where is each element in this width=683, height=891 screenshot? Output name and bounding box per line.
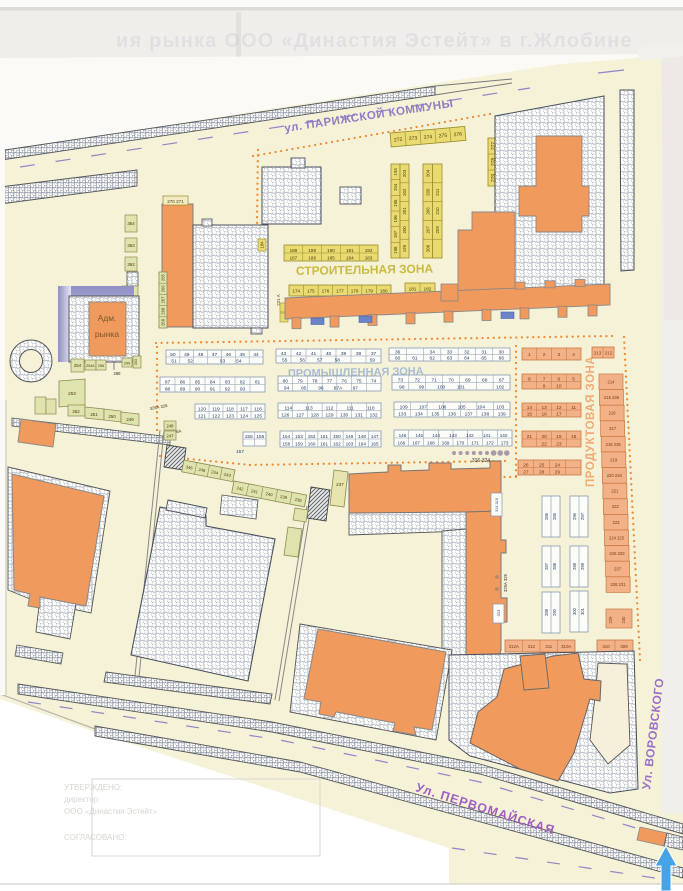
svg-text:296: 296 <box>572 512 577 520</box>
svg-text:224 225: 224 225 <box>609 535 625 540</box>
svg-text:58: 58 <box>335 358 341 364</box>
svg-text:252: 252 <box>72 409 80 414</box>
svg-text:237: 237 <box>614 567 622 572</box>
svg-text:88: 88 <box>165 387 171 393</box>
svg-text:16: 16 <box>541 412 547 418</box>
svg-text:ия рынка ООО «Династия Эстейт»: ия рынка ООО «Династия Эстейт» в г.Жлоби… <box>116 30 633 52</box>
svg-text:105: 105 <box>458 404 466 410</box>
svg-text:170: 170 <box>457 441 465 446</box>
svg-text:94: 94 <box>284 386 290 392</box>
svg-text:168: 168 <box>427 441 435 446</box>
svg-text:89: 89 <box>180 387 186 393</box>
svg-text:206: 206 <box>425 207 430 215</box>
svg-text:37: 37 <box>371 351 377 357</box>
svg-text:196: 196 <box>393 215 398 223</box>
svg-text:159: 159 <box>295 442 303 447</box>
svg-text:126: 126 <box>281 413 289 419</box>
svg-text:69: 69 <box>465 377 471 383</box>
svg-text:80: 80 <box>283 378 289 384</box>
svg-text:97А: 97А <box>334 386 343 392</box>
svg-text:102: 102 <box>496 385 504 391</box>
svg-text:17: 17 <box>556 412 562 418</box>
svg-text:226 233: 226 233 <box>609 551 625 556</box>
svg-text:49: 49 <box>184 352 190 358</box>
svg-text:79: 79 <box>297 378 303 384</box>
svg-text:Адм.: Адм. <box>98 313 117 323</box>
svg-text:52: 52 <box>188 359 194 365</box>
svg-text:188: 188 <box>290 248 298 253</box>
svg-text:46: 46 <box>226 352 232 358</box>
svg-text:18: 18 <box>571 434 577 440</box>
svg-text:128: 128 <box>311 413 319 419</box>
svg-text:130: 130 <box>340 413 348 419</box>
svg-text:312А: 312А <box>509 644 519 649</box>
svg-text:288: 288 <box>552 562 557 570</box>
svg-text:197: 197 <box>393 230 398 238</box>
svg-text:40: 40 <box>326 351 332 357</box>
svg-text:249: 249 <box>126 417 134 422</box>
svg-text:УТВЕРЖДЕНО:: УТВЕРЖДЕНО: <box>64 783 122 792</box>
svg-text:127: 127 <box>296 413 304 419</box>
svg-text:33: 33 <box>447 349 453 355</box>
svg-text:100: 100 <box>437 385 445 391</box>
svg-text:181: 181 <box>409 286 417 291</box>
svg-text:10: 10 <box>556 384 562 390</box>
svg-text:ПРОДУКТОВАЯ ЗОНА: ПРОДУКТОВАЯ ЗОНА <box>585 356 597 487</box>
svg-text:СОГЛАСОВАНО:: СОГЛАСОВАНО: <box>64 833 127 842</box>
svg-text:199: 199 <box>402 244 407 252</box>
svg-text:39: 39 <box>341 351 347 357</box>
svg-text:66: 66 <box>499 356 505 362</box>
svg-text:250: 250 <box>108 414 116 419</box>
svg-text:38: 38 <box>356 351 362 357</box>
svg-text:81: 81 <box>255 379 261 385</box>
svg-text:59: 59 <box>370 358 376 364</box>
svg-text:13: 13 <box>541 405 547 411</box>
svg-text:96: 96 <box>318 386 324 392</box>
svg-text:362: 362 <box>127 262 135 267</box>
svg-text:118: 118 <box>226 406 234 412</box>
svg-text:76: 76 <box>342 378 348 384</box>
svg-text:106: 106 <box>438 404 446 410</box>
svg-text:312: 312 <box>528 644 536 649</box>
svg-text:182: 182 <box>424 286 432 291</box>
svg-text:156: 156 <box>245 434 253 440</box>
svg-text:135: 135 <box>431 412 439 418</box>
svg-text:211: 211 <box>435 188 440 196</box>
svg-text:230: 230 <box>621 616 626 624</box>
svg-text:СТРОИТЕЛЬНАЯ ЗОНА: СТРОИТЕЛЬНАЯ ЗОНА <box>296 262 434 278</box>
svg-text:363: 363 <box>127 243 135 248</box>
svg-text:55: 55 <box>282 358 288 364</box>
svg-text:122: 122 <box>212 414 220 420</box>
svg-text:67: 67 <box>499 377 505 383</box>
svg-text:248: 248 <box>167 424 175 429</box>
svg-text:237: 237 <box>336 482 344 487</box>
svg-text:30: 30 <box>499 349 505 355</box>
svg-text:101: 101 <box>457 385 465 391</box>
svg-text:313: 313 <box>496 609 501 616</box>
svg-text:116: 116 <box>254 406 262 412</box>
svg-text:219: 219 <box>610 457 618 462</box>
svg-text:301: 301 <box>580 607 585 615</box>
svg-text:210: 210 <box>435 207 440 215</box>
svg-text:104: 104 <box>477 404 485 410</box>
svg-text:3: 3 <box>558 352 561 358</box>
svg-text:99: 99 <box>419 385 425 391</box>
svg-text:300: 300 <box>572 607 577 615</box>
svg-text:7: 7 <box>543 376 546 382</box>
svg-text:134: 134 <box>415 412 423 418</box>
svg-text:53: 53 <box>220 359 226 365</box>
svg-text:175: 175 <box>307 288 315 293</box>
svg-text:95: 95 <box>301 386 307 392</box>
svg-text:147: 147 <box>371 434 379 439</box>
svg-text:77: 77 <box>327 378 333 384</box>
svg-text:54: 54 <box>236 359 242 365</box>
svg-text:266: 266 <box>161 285 166 293</box>
svg-text:29: 29 <box>555 470 561 476</box>
svg-text:24: 24 <box>555 462 561 468</box>
svg-text:172: 172 <box>486 441 494 446</box>
svg-text:217: 217 <box>609 426 617 431</box>
svg-text:65: 65 <box>481 356 487 362</box>
svg-text:9: 9 <box>543 384 546 390</box>
svg-text:86: 86 <box>180 379 186 385</box>
svg-text:70: 70 <box>448 377 454 383</box>
svg-text:201: 201 <box>402 207 407 215</box>
svg-text:157: 157 <box>236 449 244 455</box>
svg-text:90: 90 <box>195 387 201 393</box>
svg-text:51: 51 <box>171 359 177 365</box>
svg-text:164: 164 <box>358 442 366 447</box>
svg-text:61: 61 <box>412 356 418 362</box>
svg-text:141: 141 <box>483 433 491 438</box>
svg-text:42: 42 <box>296 351 302 357</box>
svg-text:160: 160 <box>308 442 316 447</box>
svg-text:251: 251 <box>90 412 98 417</box>
svg-text:178: 178 <box>351 288 359 293</box>
svg-text:167: 167 <box>412 441 420 446</box>
svg-text:309: 309 <box>620 644 628 649</box>
svg-text:146: 146 <box>399 433 407 438</box>
svg-text:276: 276 <box>454 132 463 139</box>
svg-text:8: 8 <box>528 376 531 382</box>
svg-text:311: 311 <box>545 644 553 649</box>
svg-text:209: 209 <box>435 226 440 234</box>
svg-text:83: 83 <box>225 379 231 385</box>
svg-text:41: 41 <box>311 351 317 357</box>
svg-text:56: 56 <box>300 358 306 364</box>
svg-text:214: 214 <box>608 379 616 384</box>
svg-text:179: 179 <box>365 288 373 293</box>
svg-text:140: 140 <box>500 433 508 438</box>
svg-text:директор: директор <box>64 795 99 804</box>
svg-text:193: 193 <box>393 168 398 176</box>
svg-text:154: 154 <box>282 434 290 439</box>
svg-text:73: 73 <box>398 377 404 383</box>
svg-text:111: 111 <box>346 405 354 411</box>
svg-text:145: 145 <box>415 433 423 438</box>
svg-text:87: 87 <box>165 379 171 385</box>
svg-text:121: 121 <box>198 414 206 420</box>
svg-text:222: 222 <box>612 504 620 509</box>
svg-text:143: 143 <box>449 433 457 438</box>
svg-text:62: 62 <box>430 356 436 362</box>
svg-text:31: 31 <box>481 349 487 355</box>
svg-text:297: 297 <box>580 512 585 520</box>
svg-text:93: 93 <box>240 387 246 393</box>
svg-text:63: 63 <box>447 356 453 362</box>
svg-text:299: 299 <box>580 562 585 570</box>
svg-text:45: 45 <box>240 352 246 358</box>
svg-text:176: 176 <box>322 288 330 293</box>
svg-text:11: 11 <box>571 405 576 411</box>
svg-text:286: 286 <box>544 512 549 520</box>
svg-text:173: 173 <box>501 441 509 446</box>
svg-text:203: 203 <box>402 169 407 177</box>
svg-text:22: 22 <box>541 442 547 448</box>
svg-text:139: 139 <box>498 412 506 418</box>
svg-text:166: 166 <box>398 441 406 446</box>
svg-text:27: 27 <box>523 470 529 476</box>
svg-text:273: 273 <box>409 135 418 142</box>
svg-text:155: 155 <box>256 434 264 440</box>
svg-text:123: 123 <box>226 414 234 420</box>
svg-text:270 271: 270 271 <box>167 199 184 204</box>
svg-text:6: 6 <box>558 376 561 382</box>
svg-text:137: 137 <box>465 412 473 418</box>
svg-text:113: 113 <box>305 405 313 411</box>
svg-text:133: 133 <box>398 412 406 418</box>
svg-text:205: 205 <box>425 188 430 196</box>
svg-text:82: 82 <box>240 379 246 385</box>
svg-text:107: 107 <box>419 404 427 410</box>
svg-text:288: 288 <box>114 371 122 376</box>
svg-text:310: 310 <box>602 644 610 649</box>
svg-text:298: 298 <box>572 562 577 570</box>
svg-text:97: 97 <box>353 386 359 392</box>
svg-text:269: 269 <box>161 318 166 326</box>
svg-text:114: 114 <box>284 405 292 411</box>
svg-text:186: 186 <box>308 256 316 261</box>
svg-text:247: 247 <box>167 434 175 439</box>
svg-text:120: 120 <box>198 406 206 412</box>
svg-text:124: 124 <box>240 414 248 420</box>
svg-text:207: 207 <box>425 226 430 234</box>
svg-text:28: 28 <box>539 470 545 476</box>
svg-text:98: 98 <box>399 385 405 391</box>
svg-text:32: 32 <box>464 349 470 355</box>
svg-text:20: 20 <box>541 434 547 440</box>
svg-text:204: 204 <box>425 169 430 177</box>
svg-text:149: 149 <box>346 434 354 439</box>
svg-text:158: 158 <box>282 442 290 447</box>
svg-text:267: 267 <box>161 296 166 304</box>
svg-text:253: 253 <box>68 391 76 396</box>
svg-text:5: 5 <box>572 376 575 382</box>
svg-text:26: 26 <box>523 462 529 468</box>
svg-text:220 234: 220 234 <box>607 473 623 478</box>
svg-text:212: 212 <box>605 350 613 355</box>
svg-text:268: 268 <box>161 307 166 315</box>
svg-text:153: 153 <box>295 434 303 439</box>
svg-text:50: 50 <box>170 352 176 358</box>
svg-text:163: 163 <box>346 442 354 447</box>
svg-text:256: 256 <box>98 364 104 368</box>
svg-text:254А: 254А <box>86 364 95 368</box>
svg-text:150: 150 <box>333 434 341 439</box>
svg-text:229: 229 <box>608 616 613 624</box>
svg-text:92: 92 <box>225 387 231 393</box>
svg-text:174: 174 <box>292 288 300 293</box>
svg-text:165: 165 <box>371 442 379 447</box>
svg-text:254: 254 <box>74 363 82 368</box>
svg-text:148: 148 <box>358 434 366 439</box>
svg-text:91: 91 <box>210 387 216 393</box>
svg-text:287: 287 <box>544 562 549 570</box>
svg-text:299: 299 <box>124 362 130 366</box>
svg-text:213: 213 <box>594 350 602 355</box>
svg-text:285: 285 <box>552 512 557 520</box>
svg-text:314 315: 314 315 <box>495 498 499 512</box>
svg-text:34: 34 <box>430 349 436 355</box>
svg-text:132: 132 <box>370 413 378 419</box>
svg-text:136: 136 <box>448 412 456 418</box>
svg-text:272: 272 <box>394 137 403 144</box>
svg-text:72: 72 <box>415 377 421 383</box>
svg-text:187: 187 <box>290 256 298 261</box>
svg-text:290: 290 <box>552 608 557 616</box>
svg-text:78: 78 <box>312 378 318 384</box>
svg-text:289: 289 <box>544 608 549 616</box>
svg-text:183: 183 <box>365 256 373 261</box>
svg-text:112: 112 <box>326 405 334 411</box>
svg-text:109: 109 <box>400 404 408 410</box>
svg-text:2: 2 <box>543 352 546 358</box>
svg-text:144: 144 <box>432 433 440 438</box>
svg-text:85: 85 <box>195 379 201 385</box>
svg-text:200: 200 <box>402 226 407 234</box>
svg-text:131: 131 <box>355 413 363 419</box>
svg-text:117: 117 <box>240 406 248 412</box>
svg-text:265: 265 <box>161 273 166 281</box>
svg-text:215 236: 215 236 <box>604 395 620 400</box>
svg-text:12: 12 <box>556 405 562 411</box>
svg-text:68: 68 <box>482 377 488 383</box>
svg-text:4: 4 <box>572 352 575 358</box>
svg-text:162: 162 <box>333 442 341 447</box>
svg-text:169: 169 <box>442 441 450 446</box>
svg-text:75: 75 <box>356 378 362 384</box>
svg-text:198: 198 <box>393 246 398 254</box>
svg-text:316-324: 316-324 <box>472 458 491 464</box>
svg-text:185: 185 <box>327 256 335 261</box>
svg-text:208: 208 <box>425 244 430 252</box>
svg-text:218 235: 218 235 <box>606 442 622 447</box>
svg-text:110: 110 <box>367 405 375 411</box>
svg-text:202: 202 <box>402 188 407 196</box>
svg-text:19: 19 <box>556 434 562 440</box>
svg-text:рынка: рынка <box>95 329 119 339</box>
svg-text:184: 184 <box>346 256 354 261</box>
svg-text:303: 303 <box>134 359 138 365</box>
svg-text:161: 161 <box>320 442 328 447</box>
svg-text:216: 216 <box>609 411 617 416</box>
svg-text:103: 103 <box>496 404 504 410</box>
svg-text:71: 71 <box>431 377 437 383</box>
svg-text:191: 191 <box>346 248 354 253</box>
svg-text:189: 189 <box>308 248 316 253</box>
svg-text:47: 47 <box>212 352 218 358</box>
svg-text:180: 180 <box>380 288 388 293</box>
svg-text:48: 48 <box>198 352 204 358</box>
svg-text:74: 74 <box>371 378 377 384</box>
svg-text:36: 36 <box>395 349 401 355</box>
svg-text:190: 190 <box>327 248 335 253</box>
svg-text:195: 195 <box>393 199 398 207</box>
svg-text:223: 223 <box>613 520 621 525</box>
svg-text:142: 142 <box>466 433 474 438</box>
svg-text:192: 192 <box>365 248 373 253</box>
svg-text:84: 84 <box>210 379 216 385</box>
svg-text:64: 64 <box>464 356 470 362</box>
svg-text:25: 25 <box>539 462 545 468</box>
svg-text:364: 364 <box>127 221 135 226</box>
svg-text:23: 23 <box>556 442 562 448</box>
svg-text:15: 15 <box>527 412 533 418</box>
svg-text:151: 151 <box>320 434 328 439</box>
svg-text:275: 275 <box>439 133 448 140</box>
svg-text:125: 125 <box>254 414 262 420</box>
svg-text:310А: 310А <box>561 644 571 649</box>
svg-text:221: 221 <box>611 489 619 494</box>
svg-text:184: 184 <box>260 241 265 249</box>
svg-text:57: 57 <box>317 358 323 364</box>
svg-text:129: 129 <box>325 413 333 419</box>
svg-text:44: 44 <box>253 352 259 358</box>
svg-text:138: 138 <box>481 412 489 418</box>
svg-text:119: 119 <box>212 406 220 412</box>
svg-text:43: 43 <box>281 351 287 357</box>
svg-text:21: 21 <box>527 434 533 440</box>
svg-text:194: 194 <box>393 183 398 191</box>
svg-text:152: 152 <box>308 434 316 439</box>
svg-text:60: 60 <box>395 356 401 362</box>
svg-text:177: 177 <box>336 288 344 293</box>
svg-text:325А 325: 325А 325 <box>503 573 508 592</box>
svg-text:171: 171 <box>471 441 479 446</box>
svg-text:ООО «Династия Эстейт»: ООО «Династия Эстейт» <box>64 807 158 816</box>
svg-text:14: 14 <box>527 405 533 411</box>
svg-text:274: 274 <box>424 134 433 141</box>
svg-text:228 231: 228 231 <box>611 582 627 587</box>
svg-text:1: 1 <box>528 352 531 358</box>
